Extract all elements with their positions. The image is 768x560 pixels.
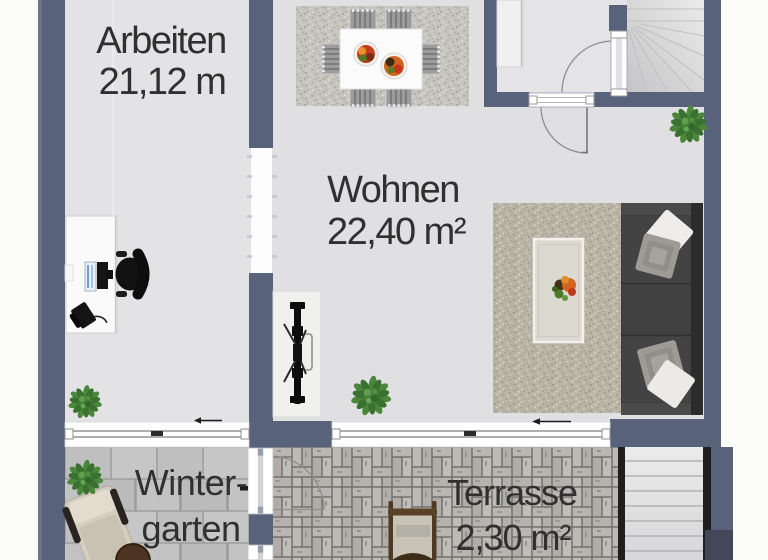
svg-text:Terrasse: Terrasse (447, 472, 577, 513)
svg-text:Wohnen: Wohnen (327, 169, 459, 211)
svg-text:22,40 m²: 22,40 m² (327, 211, 466, 253)
svg-text:21,12 m: 21,12 m (99, 61, 226, 103)
svg-text:Arbeiten: Arbeiten (96, 20, 226, 62)
svg-text:garten: garten (141, 508, 240, 549)
svg-text:Winter-: Winter- (135, 462, 248, 503)
svg-text:2,30 m²: 2,30 m² (455, 517, 571, 558)
